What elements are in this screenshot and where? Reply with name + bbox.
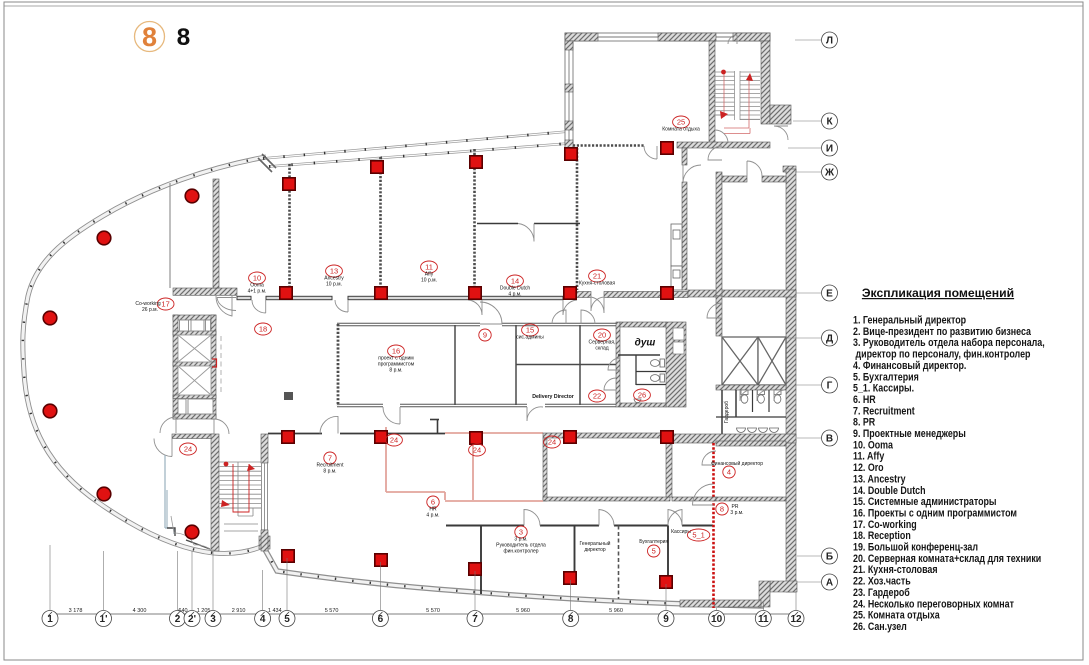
svg-text:3: 3 <box>519 528 523 537</box>
svg-text:4: 4 <box>727 468 731 477</box>
svg-text:2. Вице-президент по развитию: 2. Вице-президент по развитию бизнеса <box>853 326 1031 338</box>
svg-text:18. Reception: 18. Reception <box>853 531 911 543</box>
svg-text:5 570: 5 570 <box>426 608 440 614</box>
svg-text:Кухня-столовая: Кухня-столовая <box>579 281 616 287</box>
svg-text:23. Гардероб: 23. Гардероб <box>853 587 910 599</box>
svg-text:2': 2' <box>188 614 196 625</box>
svg-text:26: 26 <box>638 391 646 400</box>
svg-text:4 р.м.: 4 р.м. <box>508 292 521 298</box>
svg-text:25. Комната отдыха: 25. Комната отдыха <box>853 610 940 622</box>
svg-text:16: 16 <box>392 347 400 356</box>
svg-text:склад: склад <box>595 346 608 352</box>
svg-text:17. Co-working: 17. Co-working <box>853 519 917 531</box>
svg-text:24: 24 <box>390 436 398 445</box>
svg-text:7. Recruitment: 7. Recruitment <box>853 406 915 418</box>
svg-text:К: К <box>826 117 833 128</box>
svg-text:20. Серверная комната+склад дл: 20. Серверная комната+склад для техники <box>853 553 1041 565</box>
svg-text:5 960: 5 960 <box>609 608 623 614</box>
svg-text:Е: Е <box>826 289 833 300</box>
svg-text:3. Руководитель отдела набора: 3. Руководитель отдела набора персонала, <box>853 338 1045 350</box>
svg-text:Финансовый директор: Финансовый директор <box>711 460 763 467</box>
svg-text:сис.админы: сис.админы <box>516 335 544 341</box>
svg-text:16. Проекты с одним программис: 16. Проекты с одним программистом <box>853 508 1017 520</box>
svg-text:8: 8 <box>720 505 724 514</box>
svg-text:5_1. Кассиры.: 5_1. Кассиры. <box>853 383 914 395</box>
svg-text:И: И <box>826 144 833 155</box>
svg-text:Ж: Ж <box>824 168 835 179</box>
svg-text:12: 12 <box>790 614 802 625</box>
svg-text:А: А <box>826 578 833 589</box>
svg-text:Д: Д <box>826 334 833 345</box>
svg-text:4+1 р.м.: 4+1 р.м. <box>248 289 267 295</box>
svg-text:11: 11 <box>425 263 433 272</box>
svg-text:20: 20 <box>598 331 606 340</box>
svg-text:12. Oro: 12. Oro <box>853 462 884 474</box>
svg-text:Генеральный: Генеральный <box>580 540 611 547</box>
svg-text:11. Affy: 11. Affy <box>853 451 885 463</box>
svg-text:Гардероб: Гардероб <box>724 401 730 423</box>
svg-text:2 910: 2 910 <box>232 608 246 614</box>
svg-text:3 178: 3 178 <box>69 608 83 614</box>
svg-text:21: 21 <box>593 272 601 281</box>
svg-text:директор: директор <box>584 547 606 553</box>
svg-text:640: 640 <box>178 608 187 614</box>
svg-text:19. Большой конференц-зал: 19. Большой конференц-зал <box>853 542 978 554</box>
svg-text:8. PR: 8. PR <box>853 417 875 429</box>
svg-text:22. Хоз.часть: 22. Хоз.часть <box>853 576 911 588</box>
svg-text:10. Ooma: 10. Ooma <box>853 440 894 452</box>
svg-text:24: 24 <box>548 438 556 447</box>
svg-text:22: 22 <box>593 392 601 401</box>
svg-text:4 300: 4 300 <box>133 608 147 614</box>
svg-text:6. HR: 6. HR <box>853 394 876 406</box>
svg-text:5. Бухгалтерия: 5. Бухгалтерия <box>853 372 919 384</box>
svg-text:фин.контролер: фин.контролер <box>503 549 538 555</box>
svg-text:21. Кухня-столовая: 21. Кухня-столовая <box>853 565 938 577</box>
svg-text:17: 17 <box>161 300 169 309</box>
svg-text:8: 8 <box>142 22 157 52</box>
svg-text:5 570: 5 570 <box>325 608 339 614</box>
svg-text:душ: душ <box>635 338 656 349</box>
svg-text:9: 9 <box>483 331 487 340</box>
svg-text:В: В <box>826 434 833 445</box>
svg-text:14. Double Dutch: 14. Double Dutch <box>853 485 926 497</box>
svg-text:5 960: 5 960 <box>516 608 530 614</box>
svg-text:8: 8 <box>177 24 191 51</box>
svg-text:1': 1' <box>100 614 108 625</box>
svg-text:10: 10 <box>253 274 261 283</box>
svg-text:11: 11 <box>758 614 769 625</box>
svg-text:5_1: 5_1 <box>692 531 705 540</box>
svg-text:15. Системные администраторы: 15. Системные администраторы <box>853 496 997 508</box>
svg-text:Бухгалтерия: Бухгалтерия <box>639 539 668 545</box>
svg-text:26. Сан.узел: 26. Сан.узел <box>853 621 907 633</box>
svg-text:8 р.м.: 8 р.м. <box>389 368 402 374</box>
svg-text:14: 14 <box>511 277 519 286</box>
svg-text:6: 6 <box>431 498 435 507</box>
svg-text:Экспликация помещений: Экспликация помещений <box>862 286 1014 300</box>
svg-text:1. Генеральный директор: 1. Генеральный директор <box>853 315 966 327</box>
svg-text:4 р.м.: 4 р.м. <box>426 513 439 519</box>
svg-text:Б: Б <box>826 552 833 563</box>
svg-text:25: 25 <box>677 118 685 127</box>
svg-text:7: 7 <box>328 454 332 463</box>
svg-text:8 р.м.: 8 р.м. <box>323 469 336 475</box>
svg-text:18: 18 <box>259 325 267 334</box>
svg-text:15: 15 <box>526 326 534 335</box>
svg-text:13: 13 <box>330 267 338 276</box>
svg-text:10 р.м.: 10 р.м. <box>421 278 437 284</box>
svg-text:13. Ancestry: 13. Ancestry <box>853 474 906 486</box>
svg-text:10: 10 <box>711 614 723 625</box>
svg-text:24: 24 <box>184 445 192 454</box>
svg-text:10 р.м.: 10 р.м. <box>326 282 342 288</box>
svg-text:24. Несколько переговорных ком: 24. Несколько переговорных комнат <box>853 599 1014 611</box>
svg-text:директор по персоналу, фин.кон: директор по персоналу, фин.контролер <box>856 349 1031 361</box>
svg-text:Delivery Director: Delivery Director <box>532 394 574 400</box>
svg-text:3 р.м.: 3 р.м. <box>730 510 743 516</box>
svg-text:24: 24 <box>473 446 481 455</box>
svg-text:1 205: 1 205 <box>197 608 211 614</box>
svg-text:Комната отдыха: Комната отдыха <box>662 127 700 133</box>
svg-text:5: 5 <box>652 547 656 556</box>
svg-text:Л: Л <box>826 36 833 47</box>
svg-text:4. Финансовый директор.: 4. Финансовый директор. <box>853 360 967 372</box>
svg-text:26 р.м.: 26 р.м. <box>142 307 158 313</box>
svg-text:1 434: 1 434 <box>268 608 282 614</box>
svg-text:Г: Г <box>827 381 833 392</box>
svg-text:9. Проектные менеджеры: 9. Проектные менеджеры <box>853 428 966 440</box>
